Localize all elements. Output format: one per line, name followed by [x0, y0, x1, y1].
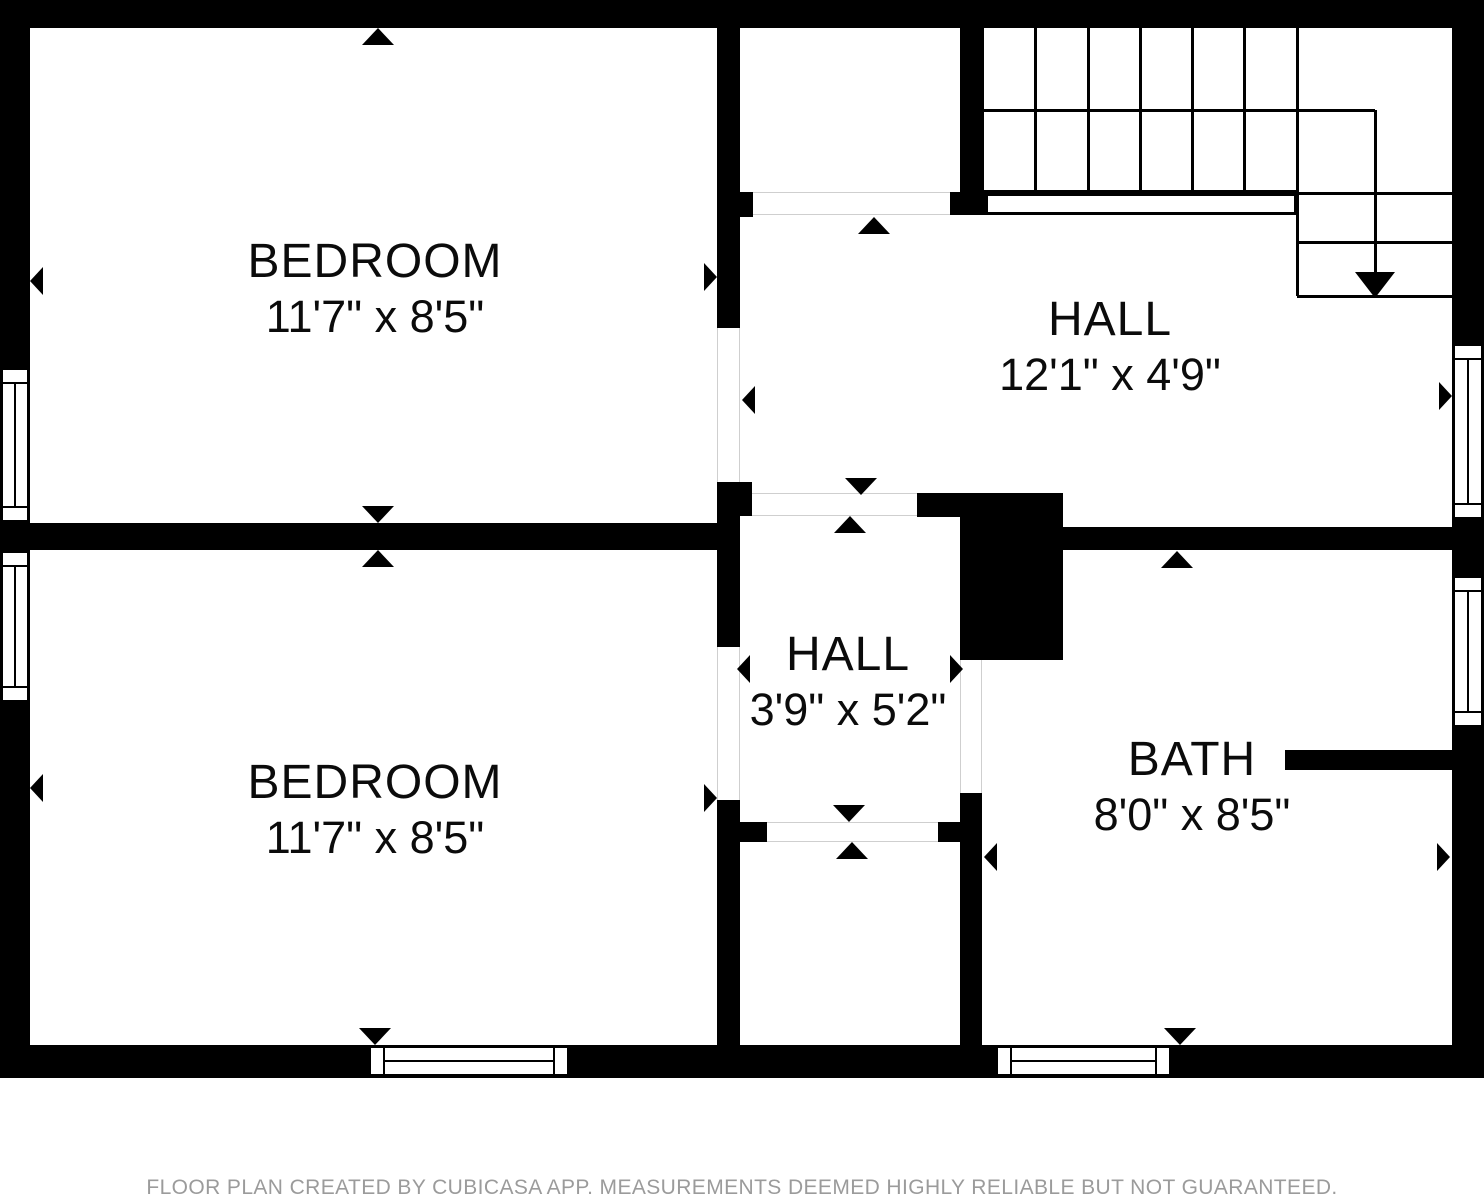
stair-direction-arrow-icon	[1355, 272, 1395, 298]
wall	[0, 0, 1484, 28]
room-label-bedroom-bottom: BEDROOM11'7" x 8'5"	[247, 757, 502, 867]
stair-tread-line	[982, 109, 1375, 112]
dimension-arrow-icon	[362, 506, 394, 523]
window-center-line	[14, 382, 16, 508]
wall	[0, 1045, 1484, 1078]
dimension-arrow-icon	[362, 28, 394, 45]
threshold-line	[753, 192, 950, 193]
dimension-arrow-icon	[836, 842, 868, 859]
dimension-arrow-icon	[950, 655, 963, 683]
wall	[960, 28, 982, 192]
wall	[717, 192, 753, 217]
stair-stringer-strip	[985, 193, 1297, 215]
wall	[1452, 28, 1484, 1078]
window-center-line	[14, 565, 16, 688]
wall	[0, 523, 740, 550]
wall	[717, 482, 752, 516]
dimension-arrow-icon	[845, 478, 877, 495]
wall	[717, 217, 740, 328]
door-opening-line	[981, 660, 982, 793]
wall	[717, 800, 740, 1045]
footer-disclaimer: FLOOR PLAN CREATED BY CUBICASA APP. MEAS…	[0, 1176, 1484, 1200]
room-label-hall-small: HALL3'9" x 5'2"	[750, 629, 947, 739]
dimension-arrow-icon	[742, 386, 755, 414]
dimension-arrow-icon	[30, 267, 43, 295]
room-name: HALL	[750, 629, 947, 681]
threshold	[767, 822, 938, 842]
room-name: BATH	[1094, 734, 1291, 786]
dimension-arrow-icon	[359, 1028, 391, 1045]
wall	[740, 822, 767, 842]
stair-tread-line	[1297, 241, 1452, 244]
window-center-line	[1010, 1060, 1157, 1062]
door-opening-line	[739, 328, 740, 482]
door-opening-line	[717, 647, 718, 800]
room-dimensions: 8'0" x 8'5"	[1094, 786, 1291, 844]
dimension-arrow-icon	[737, 655, 750, 683]
stair-tread-line	[1297, 192, 1452, 195]
dimension-arrow-icon	[858, 217, 890, 234]
room-name: HALL	[999, 294, 1221, 346]
room-label-hall-top: HALL12'1" x 4'9"	[999, 294, 1221, 404]
dimension-arrow-icon	[30, 774, 43, 802]
dimension-arrow-icon	[704, 263, 717, 291]
dimension-arrow-icon	[834, 516, 866, 533]
dimension-arrow-icon	[362, 550, 394, 567]
dimension-arrow-icon	[704, 784, 717, 812]
wall	[1285, 750, 1452, 770]
room-label-bedroom-top: BEDROOM11'7" x 8'5"	[247, 236, 502, 346]
wall	[960, 493, 1063, 660]
room-dimensions: 12'1" x 4'9"	[999, 346, 1221, 404]
threshold	[752, 493, 917, 516]
threshold-line	[752, 493, 917, 494]
room-dimensions: 3'9" x 5'2"	[750, 681, 947, 739]
room-name: BEDROOM	[247, 236, 502, 288]
dimension-arrow-icon	[1164, 1028, 1196, 1045]
wall	[1063, 527, 1452, 550]
threshold-line	[767, 822, 938, 823]
threshold-line	[753, 214, 950, 215]
window-center-line	[1467, 358, 1469, 505]
room-dimensions: 11'7" x 8'5"	[247, 288, 502, 346]
dimension-arrow-icon	[833, 805, 865, 822]
wall	[950, 192, 985, 215]
wall	[717, 28, 740, 192]
room-label-bath: BATH8'0" x 8'5"	[1094, 734, 1291, 844]
window-center-line	[1467, 590, 1469, 713]
wall	[960, 793, 982, 1045]
room-name: BEDROOM	[247, 757, 502, 809]
window-center-line	[383, 1060, 555, 1062]
door-opening-line	[717, 328, 718, 482]
wall	[938, 822, 962, 842]
floor-plan: BEDROOM11'7" x 8'5"BEDROOM11'7" x 8'5"HA…	[0, 0, 1484, 1200]
dimension-arrow-icon	[1439, 382, 1452, 410]
threshold	[753, 192, 950, 215]
room-dimensions: 11'7" x 8'5"	[247, 809, 502, 867]
dimension-arrow-icon	[1437, 843, 1450, 871]
dimension-arrow-icon	[984, 843, 997, 871]
stair-tread-line	[1296, 28, 1299, 296]
dimension-arrow-icon	[1161, 551, 1193, 568]
